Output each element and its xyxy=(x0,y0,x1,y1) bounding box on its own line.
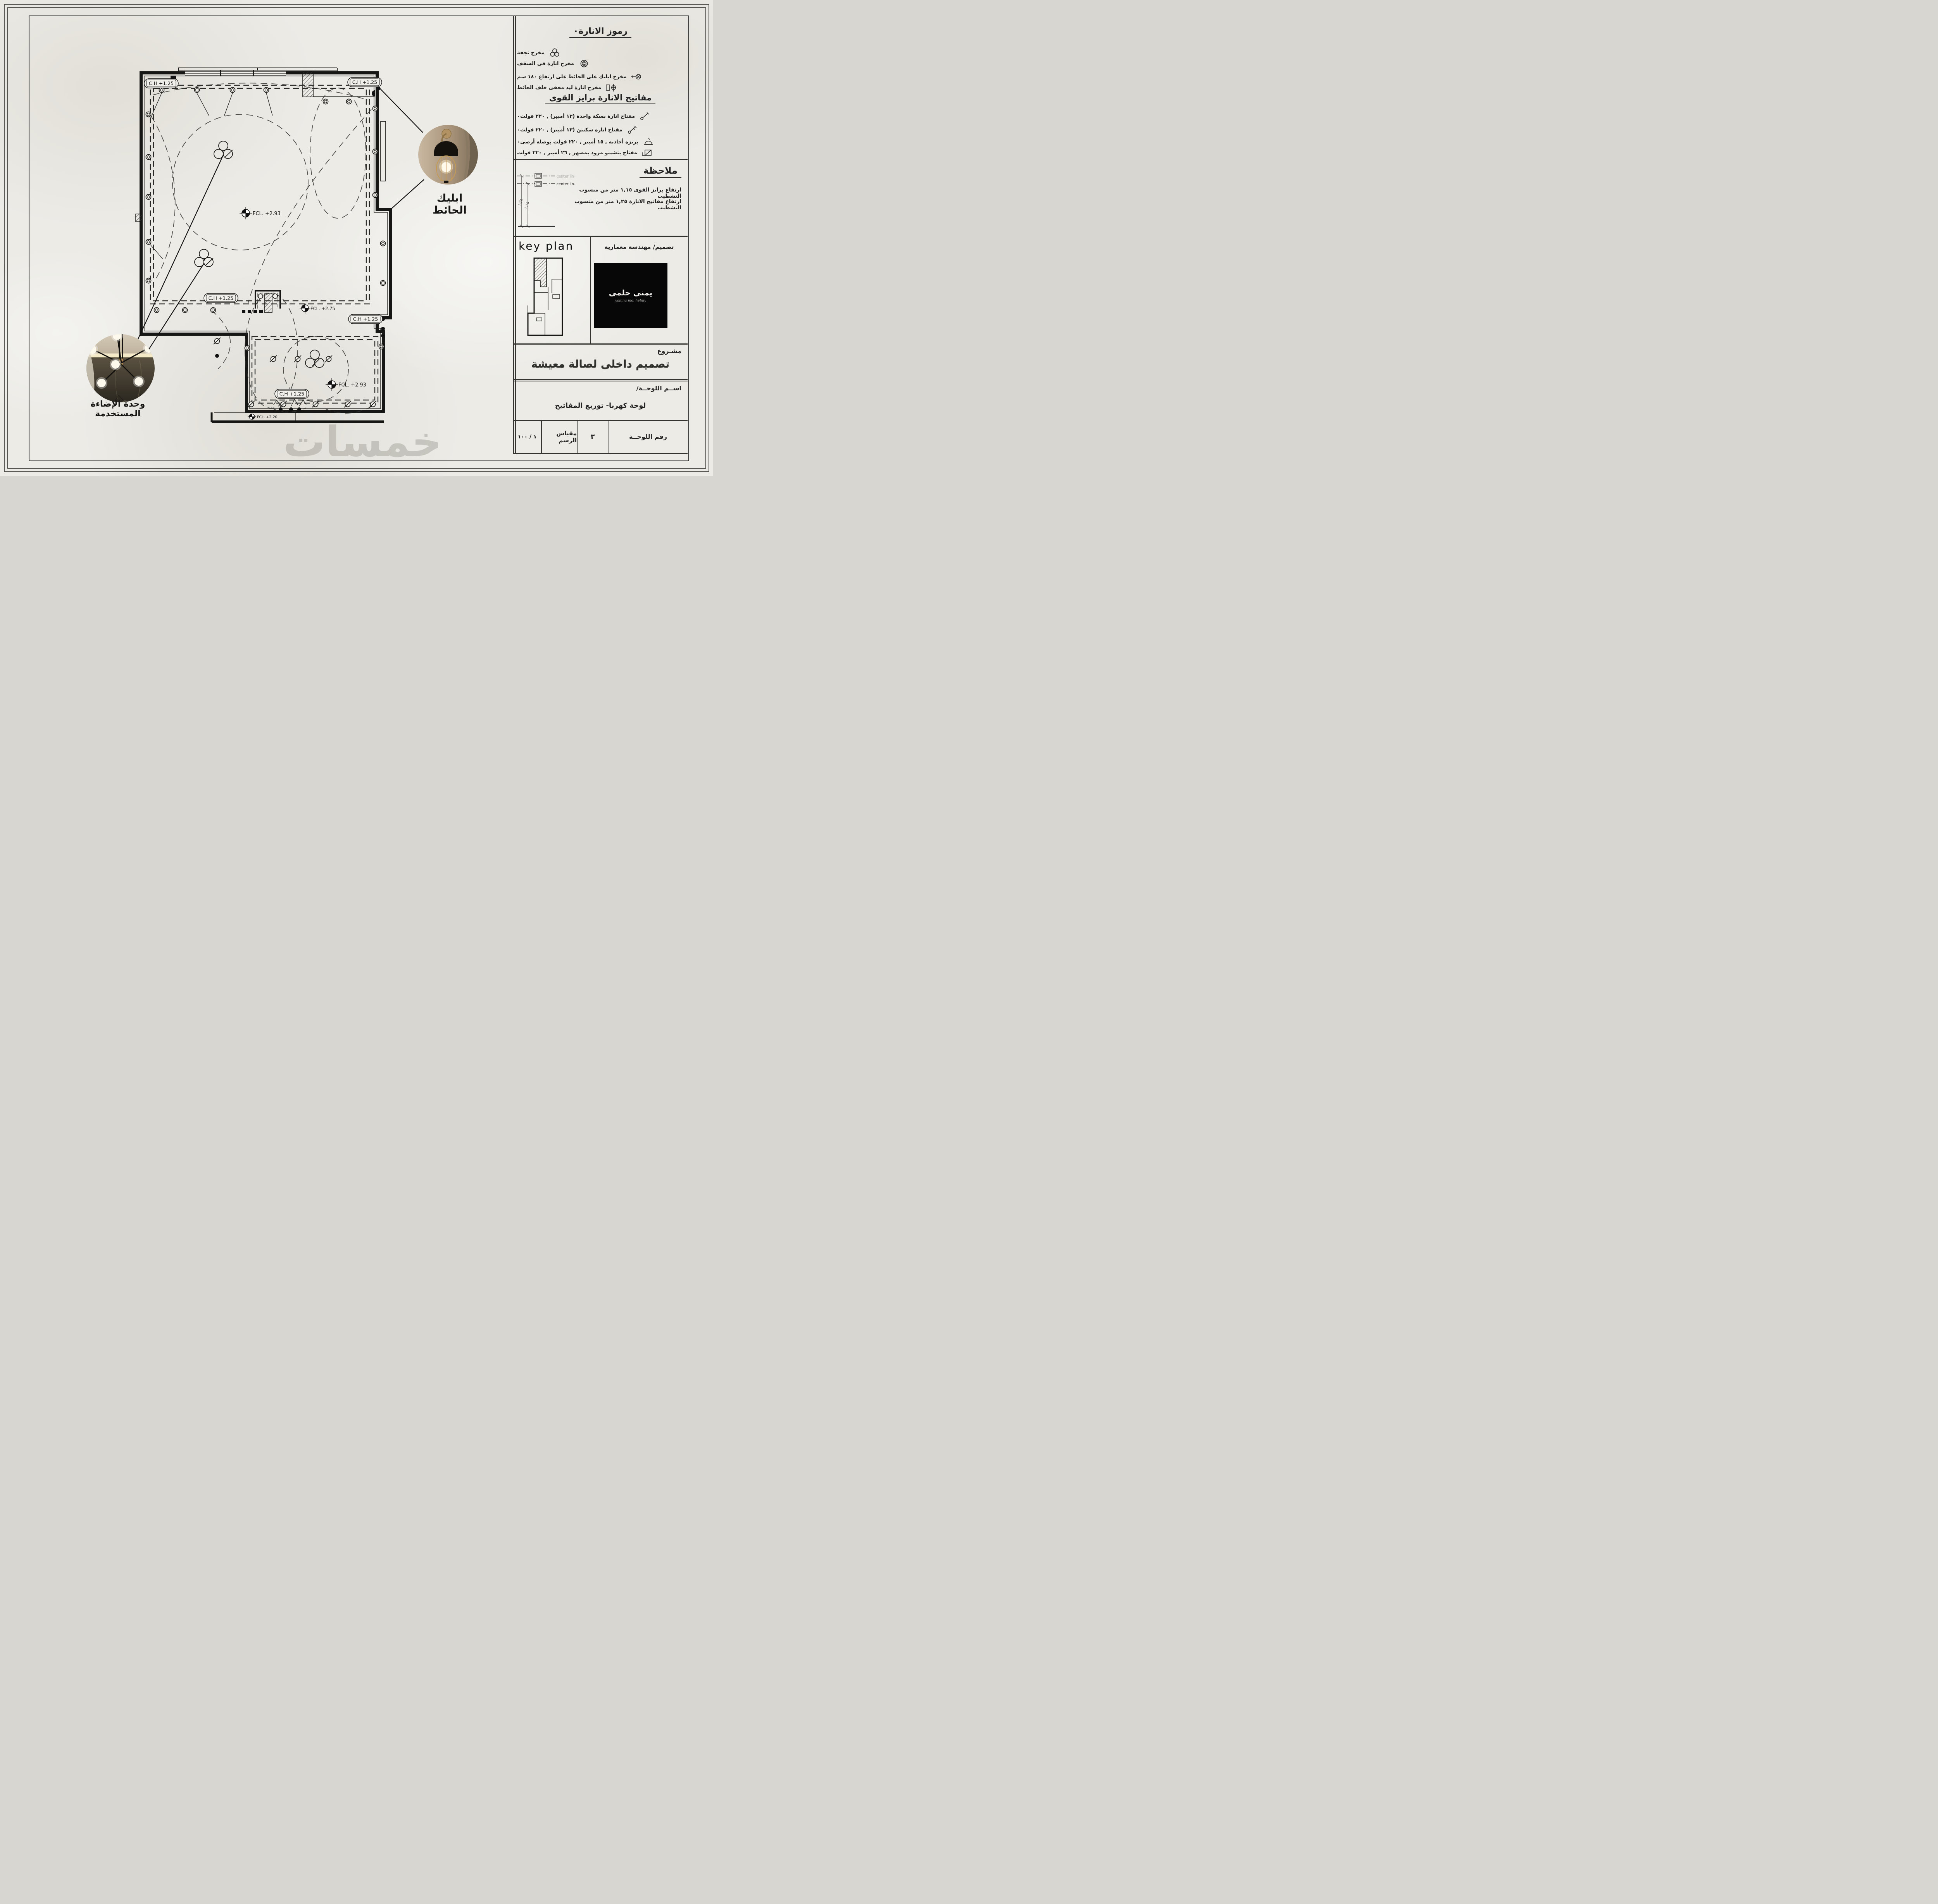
sconce-callout-photo xyxy=(418,125,478,185)
note-title: ملاحظة xyxy=(640,165,681,176)
dim-125: ١,٢٥ xyxy=(517,198,524,207)
legend-lighting-title: رموز الانارة٠ xyxy=(569,26,631,38)
legend-lighting-title-wrap: رموز الانارة٠ xyxy=(513,26,688,36)
legend-item: مفتاح انارة بسكة واحدة (١٣ أمبير) , ٢٢٠ … xyxy=(517,111,688,122)
legend-item-label: بريزة أحادية , ١٥ أمبير , ٢٢٠ فولت بوصلة… xyxy=(517,139,638,145)
wall-sconce-icon xyxy=(215,81,385,412)
pilaster-hatch xyxy=(136,214,142,222)
key-plan-map xyxy=(525,256,577,341)
scale-label: مقياس الرسم xyxy=(541,420,577,453)
legend-item-label: مخرج نجفة xyxy=(517,50,545,56)
fcl-293b-label: FCL. +2.93 xyxy=(338,382,366,388)
note-line-2: ارتفاع مفاتيح الانارة ١,٢٥ متر من منسوب … xyxy=(565,198,681,211)
fcl-275-label: FCL. +2.75 xyxy=(310,306,335,311)
title-block: رموز الانارة٠ مخرج نجفة مخرج انارة فى ال… xyxy=(513,16,688,460)
project-title: تصميم داخلى لصالة معيشة xyxy=(517,358,684,370)
hidden-led-outlet-icon xyxy=(605,83,617,93)
legend-item: مخرج ابليك على الحائط على ارتفاع ١٨٠ سم xyxy=(517,71,688,82)
logo-latin: yomna mo. helmy xyxy=(615,299,646,303)
legend-item-label: مفتاح انارة سكتين (١٣ أمبير) , ٢٢٠ فولت٠ xyxy=(517,127,622,133)
svg-text:C.H +1.25: C.H +1.25 xyxy=(209,295,233,301)
ceiling-light-outlet-icon xyxy=(578,59,590,69)
designer-logo: يمنى حلمى yomna mo. helmy xyxy=(594,263,667,328)
sheet-number-value: ٣ xyxy=(577,420,609,453)
column-hatch xyxy=(264,294,272,312)
project-label: مشـروع xyxy=(657,347,681,355)
two-way-switch-icon xyxy=(626,125,639,135)
svg-text:C.H +1.25: C.H +1.25 xyxy=(279,391,304,397)
led-strip-line xyxy=(150,85,378,403)
dim-115: ١,١٥ xyxy=(524,201,530,210)
legend-item-label: مخرج ابليك على الحائط على ارتفاع ١٨٠ سم xyxy=(517,74,626,80)
fcl-293-label: FCL. +2.93 xyxy=(253,211,281,217)
column-hatch xyxy=(303,71,313,97)
chandelier-outlet-icon xyxy=(548,48,561,58)
legend-item-label: مخرج انارة فى السقف xyxy=(517,61,574,67)
one-way-switch-icon xyxy=(639,111,651,121)
chandelier-callout-label: وحدة الإضاءة المستخدمة xyxy=(75,399,160,419)
legend-switches-title-wrap: مفاتيح الانارة برايز القوى xyxy=(513,93,688,102)
designer-label: تصميم/ مهندسة معمارية xyxy=(592,243,686,250)
logo-arabic: يمنى حلمى xyxy=(609,288,653,297)
legend-item: مفتاح بتشينو مزود بمصهر , ٢٦ أمبير , ٢٢٠… xyxy=(517,147,688,158)
svg-text:C.H +1.25: C.H +1.25 xyxy=(352,79,377,85)
sheet-number-label: رقم اللوحــة xyxy=(609,420,688,453)
sheet-name-value: لوحة كهربا- توزيع المفاتيح xyxy=(517,402,684,410)
svg-text:C.H +1.25: C.H +1.25 xyxy=(149,81,174,86)
sconce-callout-label: ابليك الحائط xyxy=(419,192,481,216)
svg-text:C.H +1.25: C.H +1.25 xyxy=(353,316,378,322)
legend-item: مخرج انارة فى السقف xyxy=(517,58,688,69)
center-line-label-top: center line xyxy=(557,174,574,179)
sheet-name-label: اســم اللوحــة/ xyxy=(636,385,681,392)
wall-sconce-outlet-icon xyxy=(630,72,643,82)
legend-item: مخرج نجفة xyxy=(517,47,688,58)
key-plan-title: key plan xyxy=(519,240,574,252)
fused-switch-icon xyxy=(641,148,653,158)
legend-item-label: مفتاح انارة بسكة واحدة (١٣ أمبير) , ٢٢٠ … xyxy=(517,114,635,119)
ch-labels: C.H +1.25 C.H +1.25 C.H +1.25 C.H +1.25 … xyxy=(144,78,383,398)
drawing-sheet: FCL. +2.93 FCL. +2.75 FCL. +2.93 FCL. +2… xyxy=(0,0,713,476)
switch-drop-line xyxy=(149,93,306,406)
scale-value: ١ / ١٠٠ xyxy=(513,420,541,453)
single-socket-icon xyxy=(642,137,655,147)
window xyxy=(185,70,286,76)
watermark: خمسات xyxy=(287,418,442,466)
legend-item: مخرج انارة ليد مخفى خلف الحائط xyxy=(517,82,688,93)
legend-item-label: مخرج انارة ليد مخفى خلف الحائط xyxy=(517,85,601,91)
switch-arc xyxy=(151,83,372,413)
fcl-220-label: FCL. +2.20 xyxy=(257,415,278,419)
legend-item: بريزة أحادية , ١٥ أمبير , ٢٢٠ فولت بوصلة… xyxy=(517,136,688,147)
legend-item-label: مفتاح بتشينو مزود بمصهر , ٢٦ أمبير , ٢٢٠… xyxy=(517,150,637,156)
legend-item: مفتاح انارة سكتين (١٣ أمبير) , ٢٢٠ فولت٠ xyxy=(517,124,688,135)
center-line-label-bottom: center line xyxy=(557,182,574,186)
legend-switches-title: مفاتيح الانارة برايز القوى xyxy=(545,93,655,104)
note-line-1: ارتفاع برايز القوى ١,١٥ متر من منسوب الت… xyxy=(565,187,681,199)
